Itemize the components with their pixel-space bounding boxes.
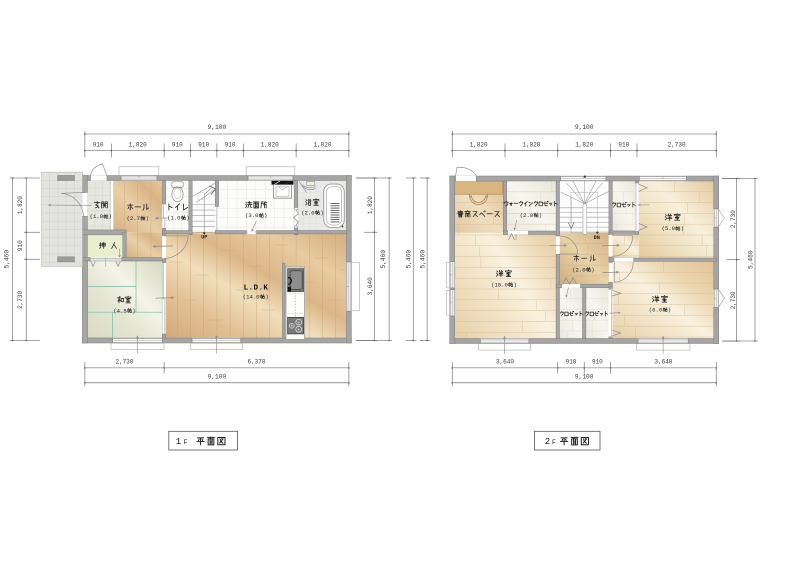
svg-text:): ) [668,307,671,314]
svg-text:F: F [184,439,188,446]
svg-text:9,100: 9,100 [208,373,227,380]
svg-text:3,640: 3,640 [367,277,374,295]
svg-text:(2.0: (2.0 [572,266,586,273]
svg-text:UP: UP [201,234,207,240]
svg-text:910: 910 [225,142,236,149]
svg-text:(2.0: (2.0 [520,212,534,219]
svg-text:1,820: 1,820 [261,142,279,149]
svg-text:): ) [681,225,684,232]
svg-text:910: 910 [17,240,24,251]
svg-text:9,100: 9,100 [208,124,227,131]
svg-text:9,100: 9,100 [575,373,594,380]
svg-text:5,460: 5,460 [420,250,427,269]
svg-text:5,460: 5,460 [380,250,387,269]
svg-text:): ) [320,209,323,216]
svg-text:1: 1 [176,437,181,447]
svg-text:(4.5: (4.5 [113,307,126,314]
svg-text:L.D.K: L.D.K [244,285,269,293]
svg-text:): ) [514,281,517,288]
svg-text:(1.0: (1.0 [167,215,181,222]
svg-text:9,100: 9,100 [575,124,594,131]
svg-text:): ) [109,213,112,220]
svg-text:1,820: 1,820 [313,142,331,149]
svg-text:3,640: 3,640 [654,358,672,365]
svg-text:): ) [539,212,542,219]
svg-text:910: 910 [592,358,603,365]
svg-text:910: 910 [93,142,104,149]
svg-text:): ) [132,307,135,314]
svg-text:5,460: 5,460 [748,250,755,269]
svg-text:3,640: 3,640 [496,358,514,365]
svg-text:1,820: 1,820 [129,142,147,149]
svg-text:): ) [146,215,149,222]
svg-text:2,730: 2,730 [115,358,133,365]
svg-text:910: 910 [172,142,183,149]
svg-text:1,820: 1,820 [470,142,488,149]
svg-text:(1.0: (1.0 [90,213,104,220]
svg-text:1,820: 1,820 [575,142,593,149]
svg-text:2,730: 2,730 [730,291,737,309]
svg-text:5,460: 5,460 [4,250,11,269]
svg-text:5,460: 5,460 [406,250,413,269]
svg-text:(5.0: (5.0 [662,225,676,232]
svg-text:6,370: 6,370 [247,358,265,365]
svg-text:F: F [552,439,556,446]
svg-text:2,730: 2,730 [730,210,737,228]
svg-text:1,820: 1,820 [522,142,540,149]
svg-text:1,820: 1,820 [367,196,374,214]
svg-text:(2.0: (2.0 [301,209,315,216]
svg-text:910: 910 [198,142,209,149]
svg-text:): ) [265,294,268,301]
svg-text:DN: DN [594,235,600,241]
svg-text:(14.0: (14.0 [243,294,260,301]
svg-text:): ) [264,212,267,219]
svg-text:(6.0: (6.0 [649,307,663,314]
svg-text:): ) [591,266,594,273]
svg-text:(10.0: (10.0 [491,281,508,288]
svg-text:(3.0: (3.0 [245,212,259,219]
svg-text:2,730: 2,730 [668,142,686,149]
svg-text:910: 910 [618,142,629,149]
svg-text:): ) [186,215,189,222]
svg-text:(2.7: (2.7 [127,215,140,222]
svg-text:2: 2 [545,437,550,447]
svg-text:1,820: 1,820 [17,196,24,214]
svg-text:910: 910 [566,358,577,365]
svg-text:2,730: 2,730 [17,291,24,309]
